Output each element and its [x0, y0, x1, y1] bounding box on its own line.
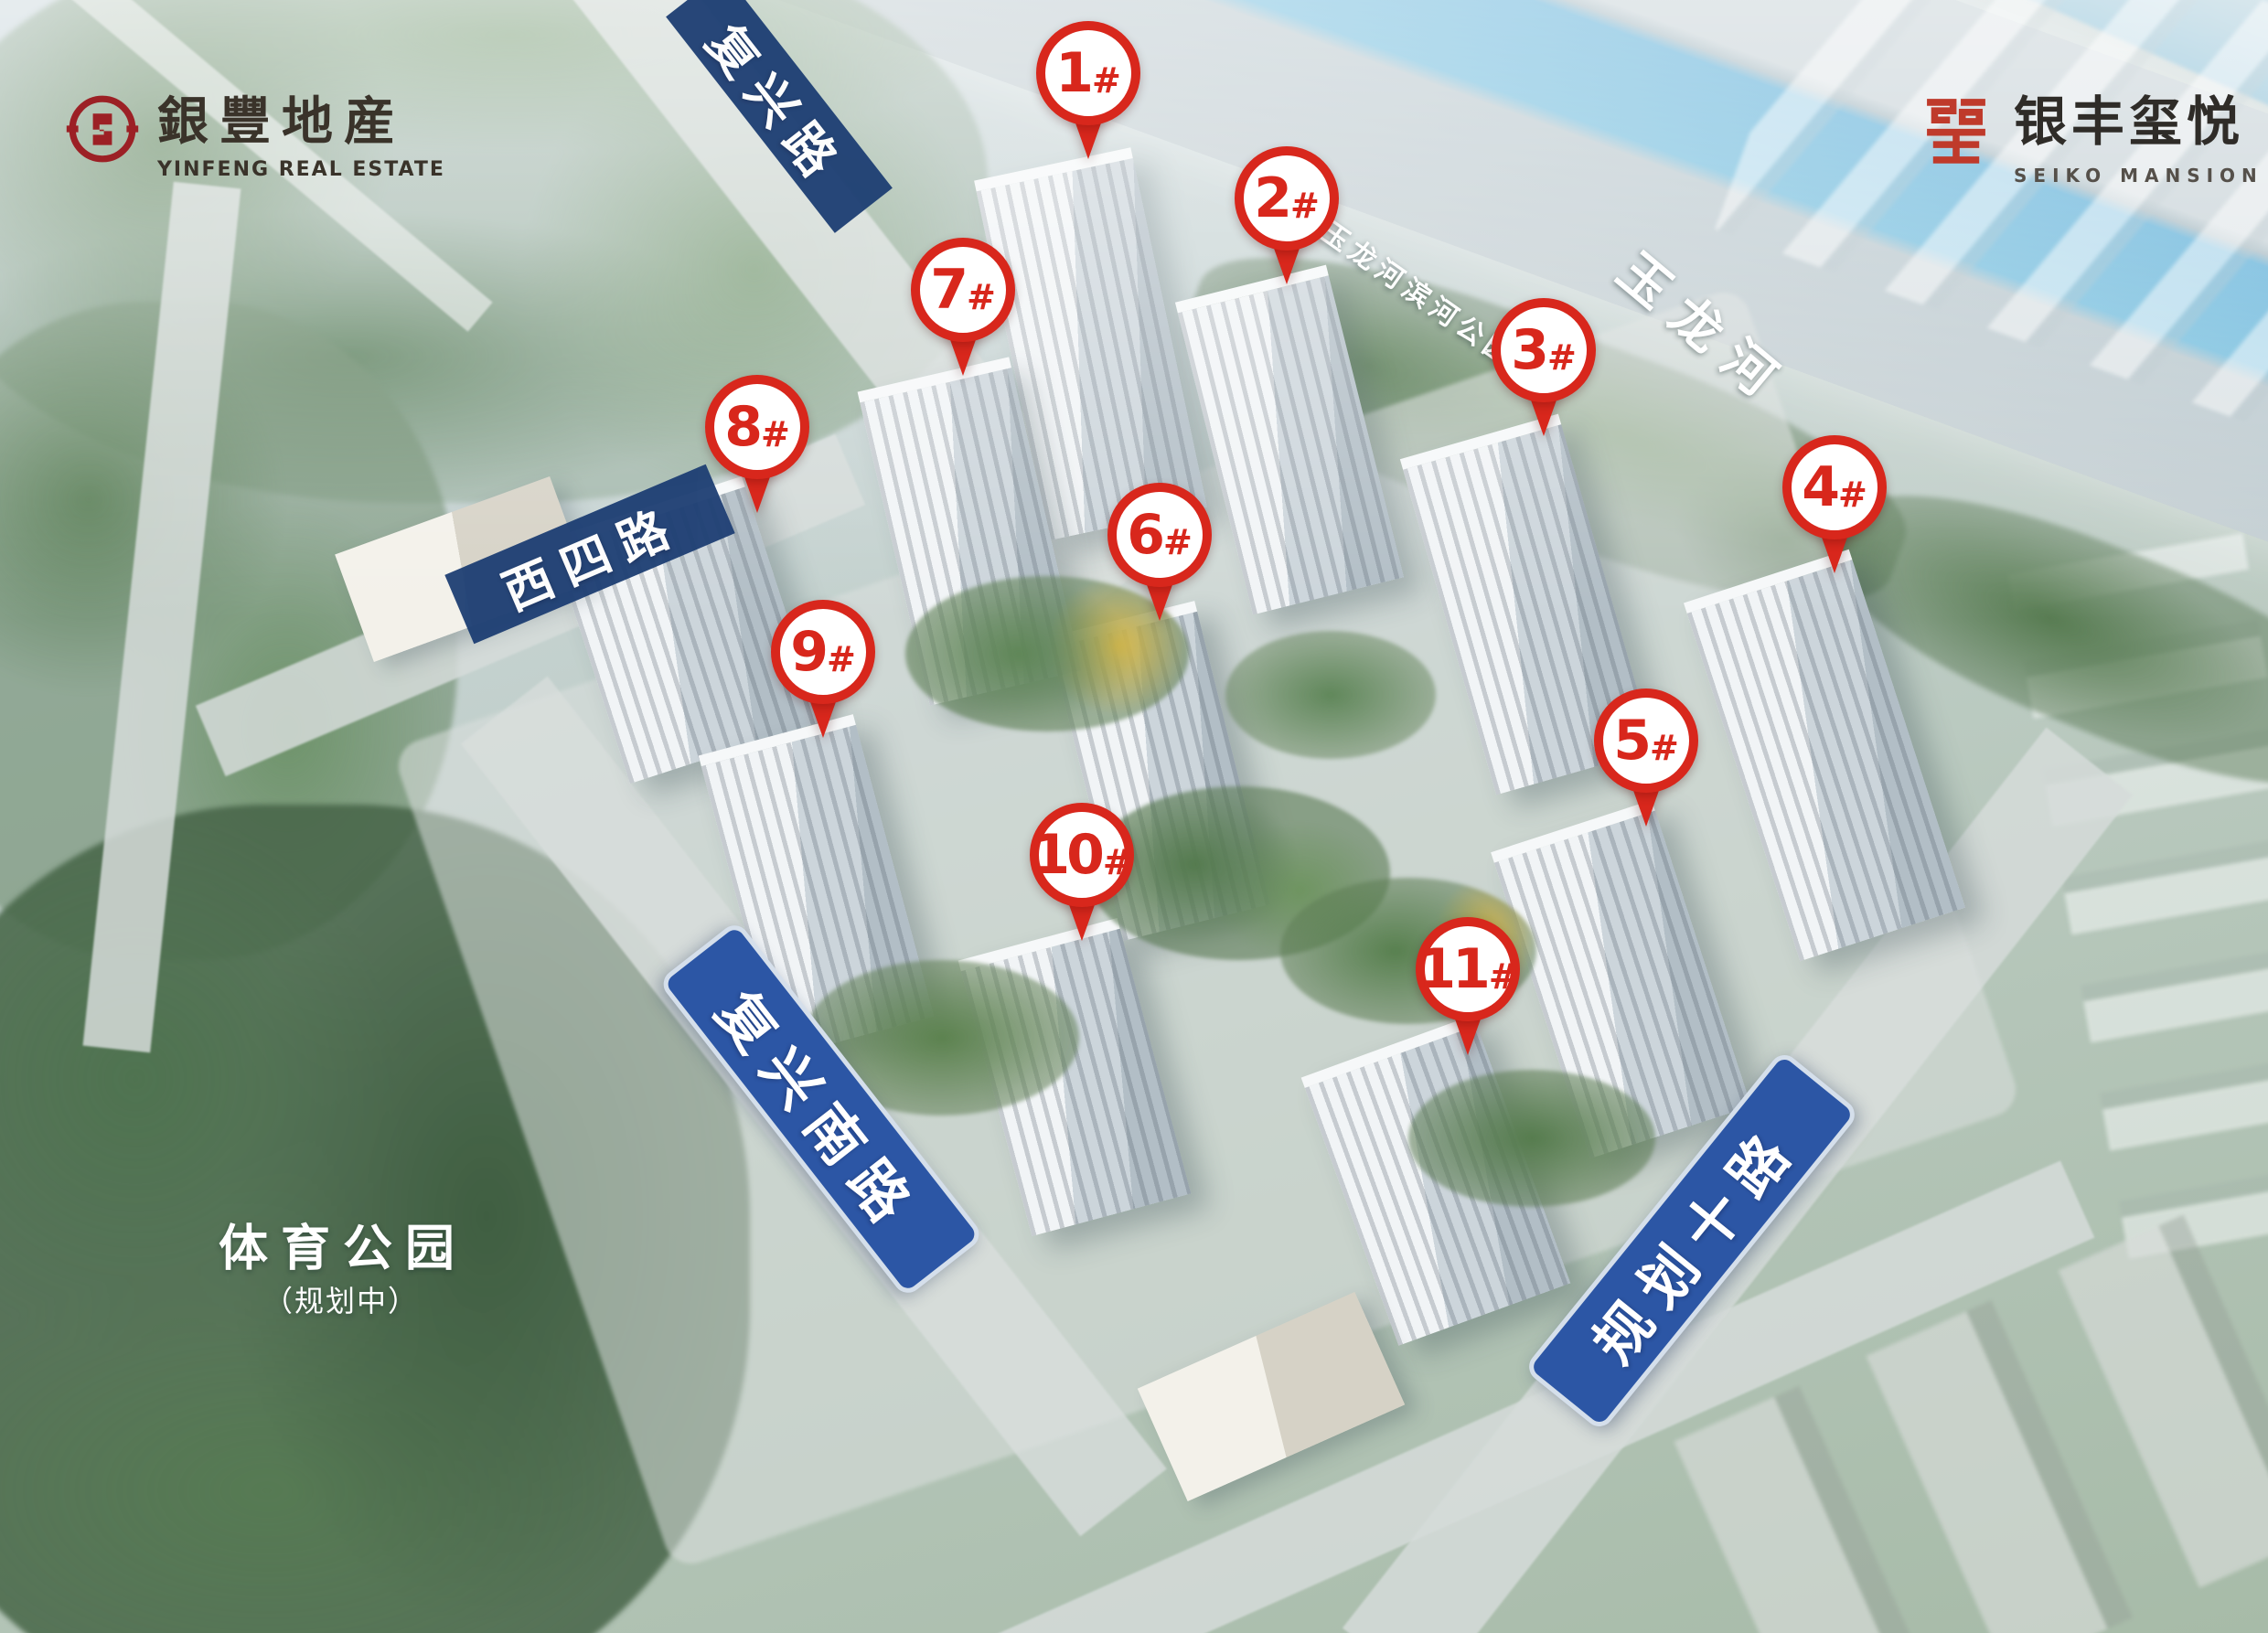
project-name-cn: 银丰玺悦 — [2014, 79, 2263, 155]
seiko-seal-icon — [1917, 92, 1995, 173]
marker-number: 10 — [1032, 827, 1101, 882]
project-name-en: SEIKO MANSION — [2014, 165, 2263, 187]
marker-hash: # — [1092, 63, 1121, 98]
marker-number: 2 — [1254, 171, 1289, 226]
courtyard-green — [1408, 1070, 1655, 1207]
marker-bubble: 6# — [1107, 483, 1212, 587]
marker-number: 4 — [1802, 460, 1836, 515]
marker-hash: # — [1650, 731, 1679, 765]
marker-bubble: 11# — [1416, 917, 1520, 1021]
marker-number: 1 — [1055, 46, 1090, 101]
site-plan-rendering: 玉龙河滨河公园 玉龙河 体育公园 （规划中） 复兴路 西四路 复兴南路 规划十路… — [0, 0, 2268, 1633]
marker-hash: # — [827, 642, 856, 677]
marker-bubble: 2# — [1235, 146, 1339, 251]
marker-number: 5 — [1613, 713, 1648, 768]
marker-hash: # — [1163, 525, 1193, 560]
marker-bubble: 3# — [1492, 298, 1596, 402]
yinfeng-seal-icon — [66, 92, 139, 169]
courtyard-green — [1225, 631, 1436, 759]
developer-name-cn: 銀豐地産 — [157, 80, 445, 155]
marker-hash: # — [1547, 340, 1577, 375]
marker-hash: # — [1838, 477, 1867, 512]
marker-number: 8 — [724, 400, 759, 454]
marker-hash: # — [1290, 188, 1320, 223]
developer-name-en: YINFENG REAL ESTATE — [157, 158, 445, 181]
marker-bubble: 9# — [771, 600, 875, 704]
marker-bubble: 4# — [1782, 435, 1887, 539]
marker-hash: # — [761, 417, 790, 452]
marker-number: 7 — [930, 262, 965, 317]
marker-bubble: 1# — [1036, 21, 1140, 125]
marker-number: 11 — [1417, 942, 1487, 997]
sports-park-note: （规划中） — [263, 1278, 419, 1320]
marker-hash: # — [1489, 959, 1518, 994]
marker-number: 6 — [1127, 507, 1161, 562]
marker-bubble: 10# — [1030, 803, 1134, 907]
marker-bubble: 8# — [705, 375, 809, 479]
project-logo: 银丰玺悦 SEIKO MANSION — [1917, 79, 2263, 187]
marker-bubble: 5# — [1594, 688, 1698, 793]
sports-park-label: 体育公园 — [219, 1208, 467, 1280]
developer-logo: 銀豐地産 YINFENG REAL ESTATE — [66, 80, 445, 181]
marker-hash: # — [1103, 845, 1132, 880]
marker-bubble: 7# — [911, 238, 1015, 342]
marker-number: 3 — [1511, 323, 1546, 378]
marker-number: 9 — [790, 624, 825, 679]
marker-hash: # — [967, 280, 996, 315]
